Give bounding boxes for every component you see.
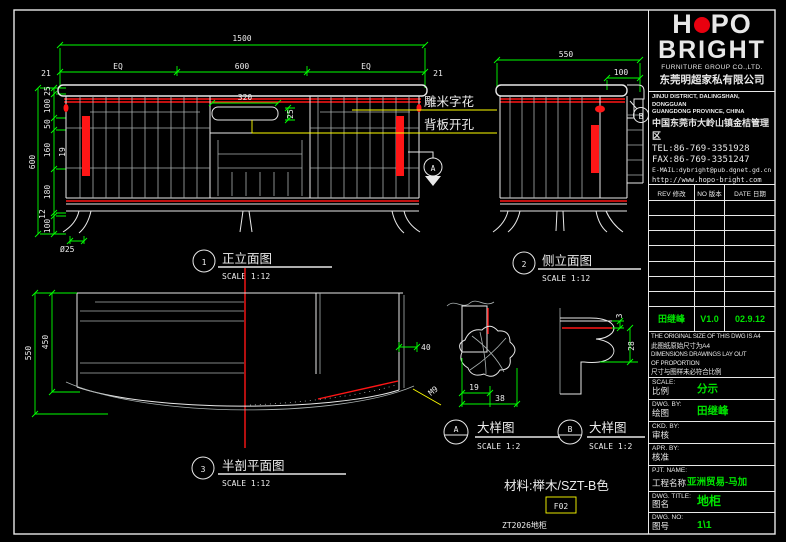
dim-front-c5: 180 xyxy=(43,185,52,200)
revision-empty-row xyxy=(649,262,775,277)
dim-plan-edge: 40 xyxy=(421,343,431,352)
revision-empty-row xyxy=(649,277,775,292)
product-code: ZT2026地柜 xyxy=(502,520,547,530)
field-drawn-by: DWG. BY: 绘图 田继峰 xyxy=(649,400,775,422)
dim-front-center: 600 xyxy=(235,62,250,71)
field-approved-by-label-cn: 核准 xyxy=(652,451,669,463)
dim-plan-inner: 450 xyxy=(41,335,50,350)
dim-front-c4: 160 xyxy=(43,143,52,158)
detail-b-letter: B xyxy=(568,425,573,434)
logo-line1: HPO xyxy=(649,11,775,38)
logo-red-dot-icon xyxy=(694,17,710,33)
dim-front-c1: 25 xyxy=(43,86,52,96)
view-scale-side: SCALE 1:12 xyxy=(542,274,590,283)
dim-side-depth: 550 xyxy=(559,50,574,59)
detail-a-balloon-letter: A xyxy=(431,164,436,173)
view-title-plan: 半剖平面图 xyxy=(222,459,285,473)
dim-front-c2: 100 xyxy=(43,99,52,114)
revision-empty-row xyxy=(649,292,775,307)
view-scale-detail-a: SCALE 1:2 xyxy=(477,442,521,451)
dim-front-eq-left: EQ xyxy=(113,62,123,71)
revision-author: 田继峰 xyxy=(649,307,695,331)
view-scale-front: SCALE 1:12 xyxy=(222,272,270,281)
bottom-notes: 材料:榉木/SZT-B色 F02 ZT2026地柜 xyxy=(502,478,609,530)
dim-detail-b-28: 28 xyxy=(627,341,636,351)
field-scale-value: 分示 xyxy=(697,381,718,396)
detail-b-balloon-letter: B xyxy=(639,112,644,121)
field-title-label-cn: 图名 xyxy=(652,498,669,510)
field-project-label-en: PJT. NAME: xyxy=(652,467,772,474)
field-approved-by: APR. BY: 核准 xyxy=(649,444,775,466)
rev-col-header: REV 修改 xyxy=(649,185,695,200)
field-number-value: 1\1 xyxy=(697,519,712,531)
dim-detail-a-38: 38 xyxy=(495,394,505,403)
field-approved-by-label-en: APR. BY: xyxy=(652,445,772,452)
email-address: E-MAIL:dybright@pub.dgnet.gd.cn xyxy=(652,166,772,176)
company-logo: HPO BRIGHT FURNITURE GROUP CO.,LTD. 东莞明超… xyxy=(649,10,775,92)
dim-front-overall-width: 1500 xyxy=(232,34,251,43)
title-block: HPO BRIGHT FURNITURE GROUP CO.,LTD. 东莞明超… xyxy=(648,10,775,534)
address-line2: GUANGDONG PROVINCE, CHINA xyxy=(652,109,772,117)
front-elevation-view: 1500 EQ 600 EQ 21 21 600 25 100 50 160 1… xyxy=(28,34,497,281)
revision-table: REV 修改 NO 版本 DATE 日期 田继峰 V1.0 02.9.12 xyxy=(649,185,775,332)
revision-empty-row xyxy=(649,201,775,216)
dim-front-end-right: 21 xyxy=(433,69,443,78)
date-col-header: DATE 日期 xyxy=(725,185,775,200)
dim-front-height: 600 xyxy=(28,155,37,170)
dim-slot-height: 25 xyxy=(286,109,295,119)
revision-empty-row xyxy=(649,231,775,246)
dim-side-overhang: 100 xyxy=(614,68,629,77)
company-name-cn: 东莞明超家私有限公司 xyxy=(649,72,775,87)
view-scale-plan: SCALE 1:12 xyxy=(222,479,270,488)
drawing-sheet: 1500 EQ 600 EQ 21 21 600 25 100 50 160 1… xyxy=(0,0,786,542)
red-accent-side xyxy=(591,125,599,173)
dim-front-eq-right: EQ xyxy=(361,62,371,71)
disclaimer-line2: 此图纸原始尺寸为A4 xyxy=(651,342,773,351)
detail-a-letter: A xyxy=(454,425,459,434)
note-back-panel-hole: 背板开孔 xyxy=(424,118,475,132)
view-number-front-text: 1 xyxy=(202,258,207,267)
logo-line2: BRIGHT xyxy=(649,38,775,62)
note-carving: 雕米字花 xyxy=(424,94,474,109)
detail-a-arrow-icon xyxy=(425,176,441,186)
field-project-label-cn: 工程名称 xyxy=(652,477,686,489)
view-title-side: 侧立面图 xyxy=(542,253,592,268)
field-project-value: 亚洲贸易-马加 xyxy=(687,474,747,488)
field-drawn-by-value: 田继峰 xyxy=(697,403,729,418)
disclaimer-line3: DIMENSIONS DRAWINGS LAY OUT xyxy=(651,351,773,360)
material-note: 材料:榉木/SZT-B色 xyxy=(504,478,609,493)
view-scale-detail-b: SCALE 1:2 xyxy=(589,442,633,451)
field-checked-by: CKD. BY: 审核 xyxy=(649,422,775,444)
part-code: F02 xyxy=(554,502,569,511)
revision-version: V1.0 xyxy=(695,307,725,331)
view-number-plan-text: 3 xyxy=(201,465,206,474)
field-drawn-by-label-cn: 绘图 xyxy=(652,407,669,419)
field-title-value: 地柜 xyxy=(697,492,721,509)
dim-front-end-left: 21 xyxy=(41,69,51,78)
view-number-side-text: 2 xyxy=(522,260,527,269)
view-title-detail-a: 大样图 xyxy=(477,420,515,435)
address-line1: JINJU DISTRICT, DALINGSHAN, DONGGUAN xyxy=(652,94,772,109)
field-scale: SCALE: 比例 分示 xyxy=(649,378,775,400)
field-checked-by-label-cn: 审核 xyxy=(652,429,669,441)
revision-empty-row xyxy=(649,216,775,231)
field-scale-label-cn: 比例 xyxy=(652,385,669,397)
field-drawing-title: DWG. TITLE: 图名 地柜 xyxy=(649,492,775,513)
field-checked-by-label-en: CKD. BY: xyxy=(652,423,772,430)
half-section-plan-view: 550 450 40 M9 3 半剖平面图 SCALE 1:12 xyxy=(24,268,441,488)
disclaimer-line4: OF PROPORTION xyxy=(651,360,773,369)
field-number-label-en: DWG. NO: xyxy=(652,514,772,521)
dim-front-c6: 12 xyxy=(38,209,47,219)
revision-table-header: REV 修改 NO 版本 DATE 日期 xyxy=(649,185,775,201)
address-cn: 中国东莞市大岭山镇金桔管理区 xyxy=(652,117,772,144)
company-group-name: FURNITURE GROUP CO.,LTD. xyxy=(649,64,775,71)
dim-slot-width: 320 xyxy=(238,93,253,102)
revision-entry-row: 田继峰 V1.0 02.9.12 xyxy=(649,307,775,331)
dim-leg-diameter: Ø25 xyxy=(60,244,75,254)
dim-plan-depth: 550 xyxy=(24,346,33,361)
revision-empty-row xyxy=(649,246,775,261)
plan-note: M9 xyxy=(427,384,440,397)
company-address-block: JINJU DISTRICT, DALINGSHAN, DONGGUAN GUA… xyxy=(649,92,775,185)
detail-a-view: 19 38 A 大样图 SCALE 1:2 xyxy=(444,301,560,451)
red-accent-left xyxy=(82,116,90,176)
disclaimer-line1: THE ORIGINAL SIZE OF THIS DWG IS A4 xyxy=(651,333,773,342)
detail-b-view: 3 28 B 大样图 SCALE 1:2 xyxy=(558,308,645,451)
disclaimer-line5: 尺寸与图样未必符合比例 xyxy=(651,368,773,377)
dim-detail-b-3: 3 xyxy=(615,313,624,318)
disclaimer-block: THE ORIGINAL SIZE OF THIS DWG IS A4 此图纸原… xyxy=(649,332,775,378)
no-col-header: NO 版本 xyxy=(695,185,725,200)
view-title-front: 正立面图 xyxy=(222,251,272,266)
field-drawing-number: DWG. NO: 图号 1\1 xyxy=(649,513,775,534)
field-project-name: PJT. NAME: 工程名称 亚洲贸易-马加 xyxy=(649,466,775,492)
phone-number: TEL:86-769-3351928 xyxy=(652,144,772,155)
dim-front-c3: 50 xyxy=(43,119,52,129)
red-accent-right xyxy=(396,116,404,176)
revision-date: 02.9.12 xyxy=(725,307,775,331)
dim-detail-a-19: 19 xyxy=(469,383,479,392)
dim-front-c7: 100 xyxy=(43,219,52,234)
field-number-label-cn: 图号 xyxy=(652,520,669,532)
side-elevation-view: 550 100 B 2 侧立面图 SCALE 1:12 xyxy=(493,50,649,283)
view-title-detail-b: 大样图 xyxy=(589,420,627,435)
fax-number: FAX:86-769-3351247 xyxy=(652,155,772,166)
